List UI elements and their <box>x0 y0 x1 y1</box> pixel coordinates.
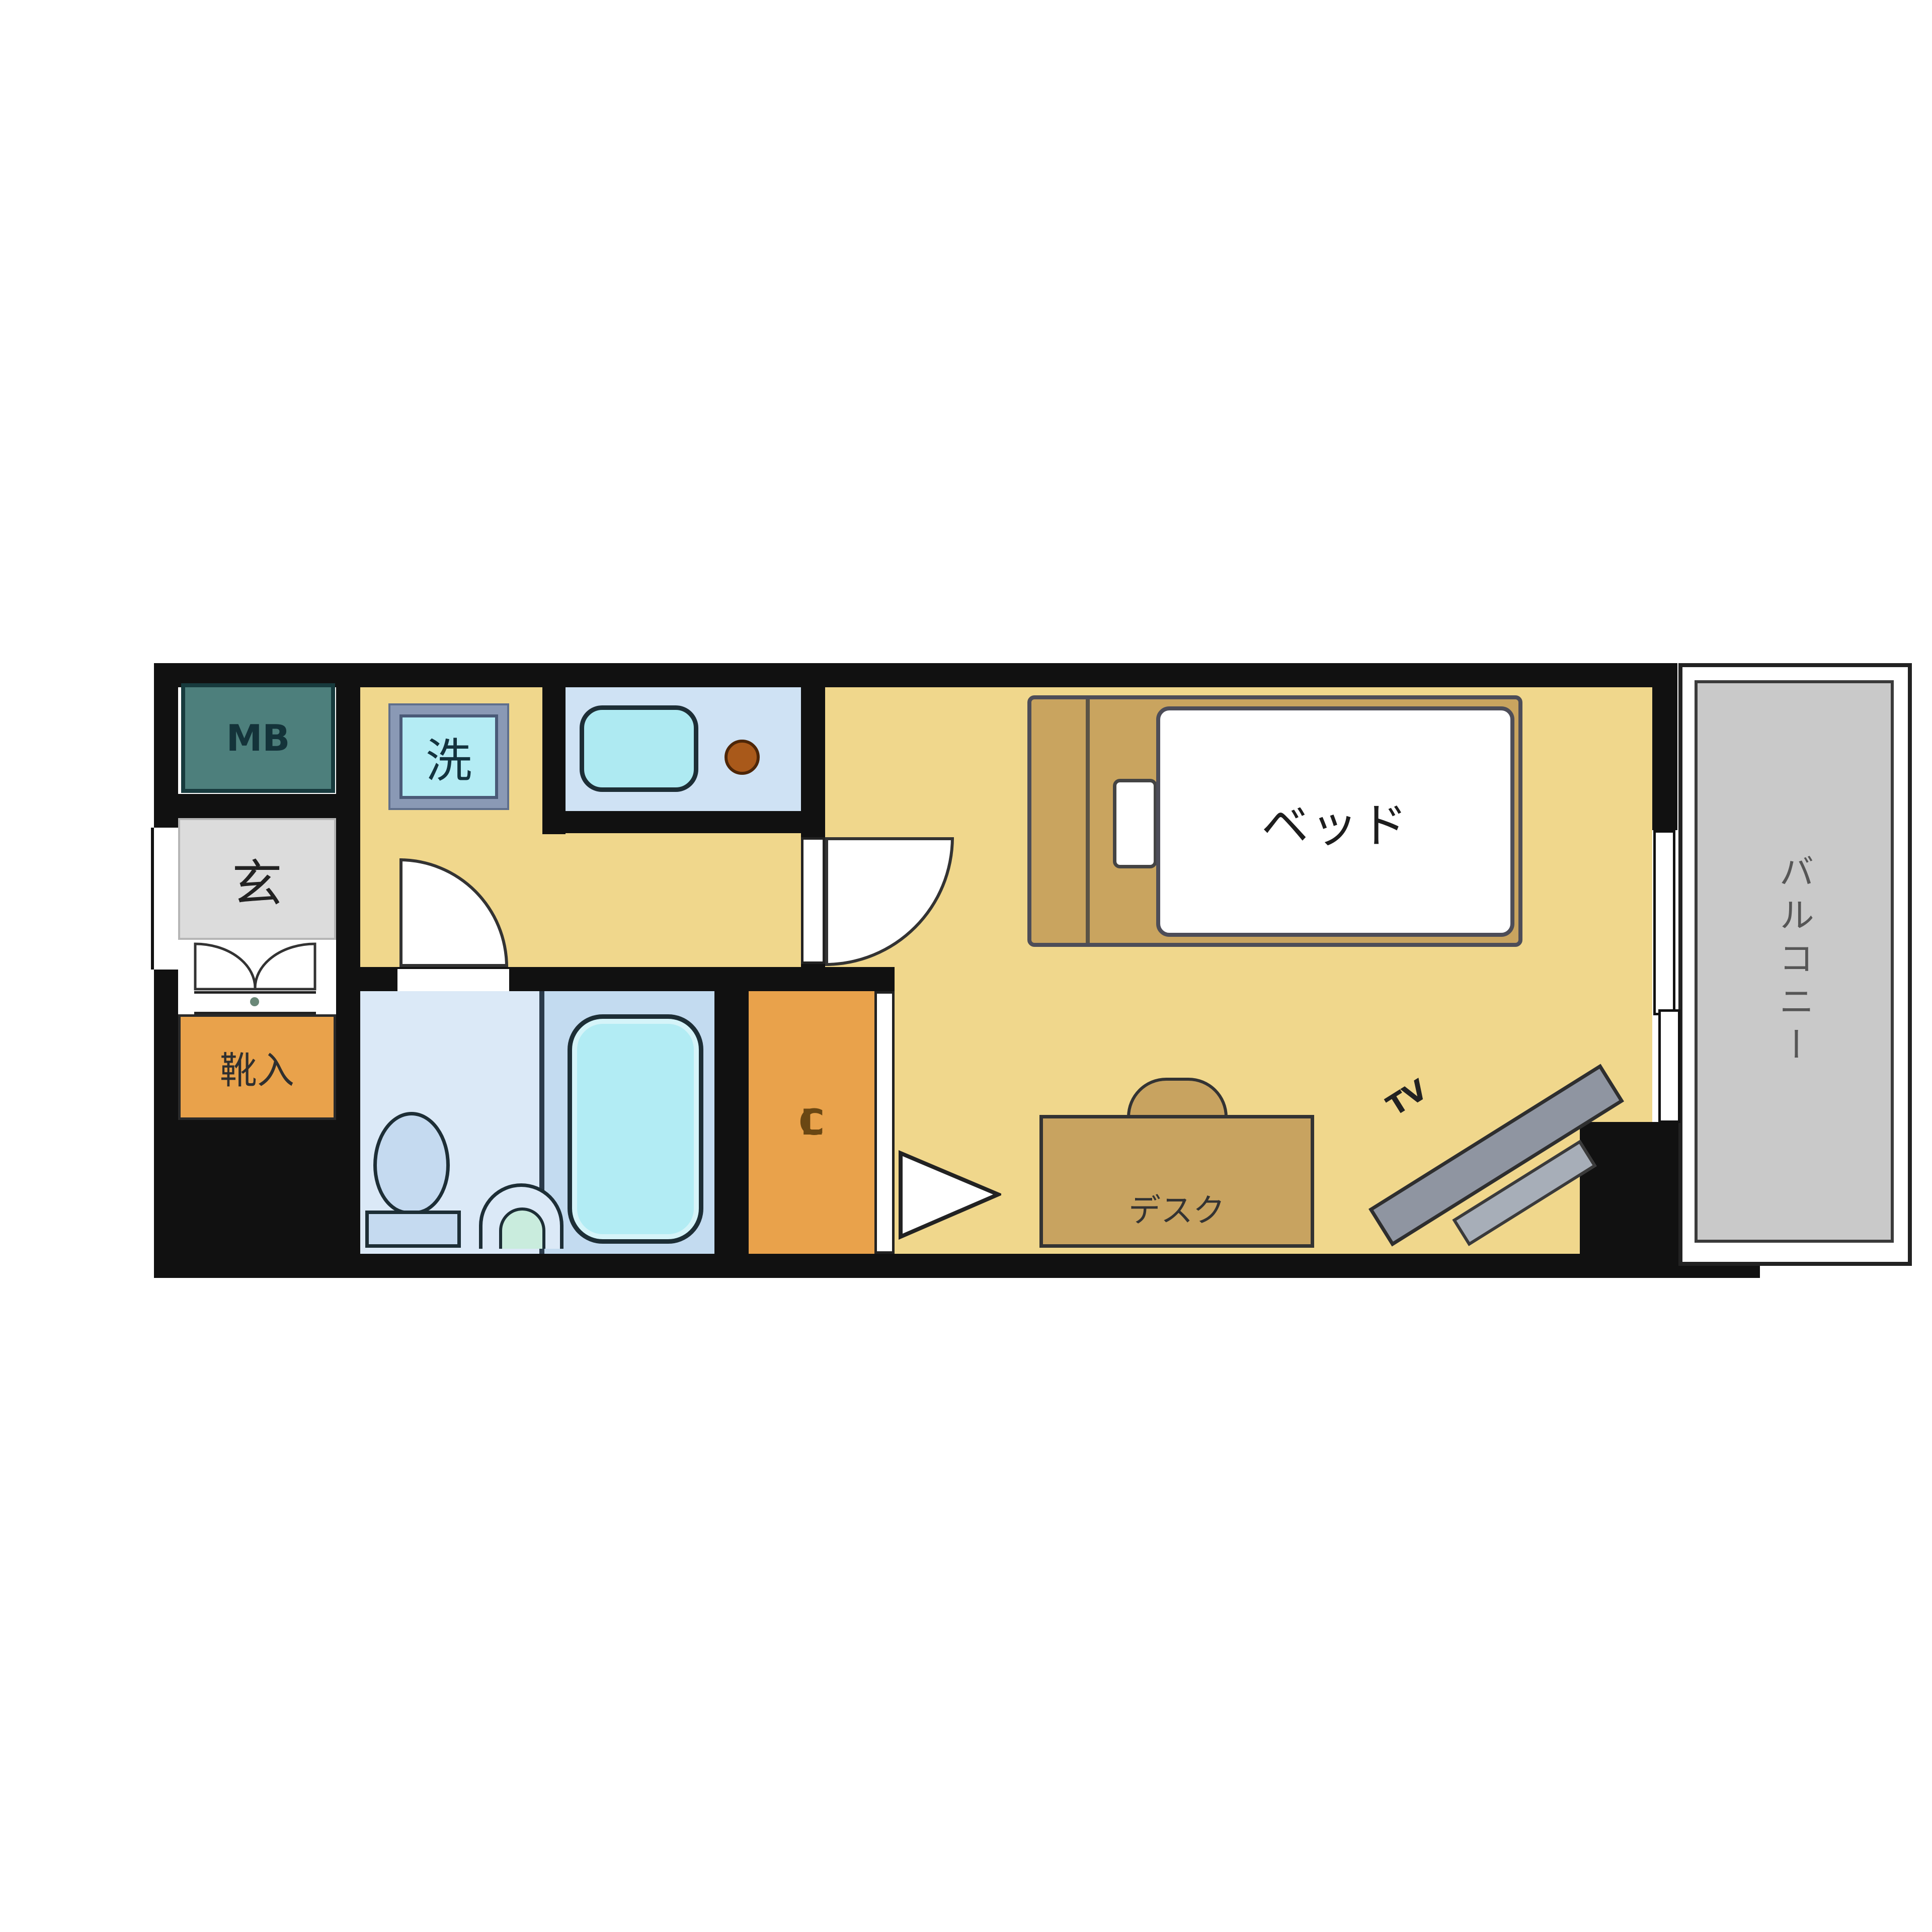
entrance-genkan: 玄 <box>178 818 336 940</box>
stove-burner-icon <box>725 740 760 775</box>
shoe-cabinet-label: 靴入 <box>220 1040 294 1094</box>
main-room-door-leaf <box>801 837 825 964</box>
wall-below-meter-box <box>154 794 360 818</box>
folding-door-arrow-icon <box>899 1150 1001 1240</box>
wall-bottom <box>154 1254 1677 1278</box>
wall-top <box>154 663 1677 687</box>
wall-right-upper <box>1652 663 1677 830</box>
closet: C L <box>749 991 874 1254</box>
balcony: バルコニー <box>1695 680 1894 1243</box>
wall-corner-bottom-left <box>154 1120 360 1278</box>
washing-machine: 洗 <box>399 714 498 799</box>
bathroom-doorway <box>397 969 509 991</box>
wall-hall-mainroom-upper <box>801 663 825 837</box>
door-handle-icon <box>250 997 259 1006</box>
bed: ベッド <box>1156 706 1514 937</box>
wall-kitchen-stub <box>542 663 566 834</box>
wall-bath-closet <box>714 991 749 1278</box>
wall-under-kitchen-counter <box>542 810 801 833</box>
wash-basin-bowl <box>499 1207 545 1249</box>
entrance-label: 玄 <box>232 843 282 916</box>
sliding-window-upper-sash <box>1653 830 1675 1015</box>
washing-machine-pan: 洗 <box>388 703 509 810</box>
meter-box-label: MB <box>226 717 290 759</box>
entrance-double-door-icon <box>178 940 336 991</box>
meter-box: MB <box>181 683 335 793</box>
bed-headboard <box>1086 699 1090 943</box>
entry-wall-opening <box>151 828 178 970</box>
closet-label-l: L <box>800 1103 823 1142</box>
desk-label: デスク <box>1129 1185 1225 1231</box>
desk: デスク <box>1039 1115 1314 1248</box>
bed-pillow <box>1113 779 1157 868</box>
floor-plan: バルコニー MB 玄 靴入 洗 C L <box>0 0 1932 1932</box>
washing-machine-label: 洗 <box>426 723 472 790</box>
closet-door <box>874 991 895 1254</box>
toilet <box>373 1112 450 1215</box>
bed-label: ベッド <box>1261 787 1409 856</box>
sliding-window-lower-sash <box>1658 1009 1680 1123</box>
shoe-cabinet: 靴入 <box>178 1014 336 1120</box>
toilet-tank <box>365 1211 461 1248</box>
bathtub <box>568 1014 703 1244</box>
balcony-label: バルコニー <box>1769 853 1820 1070</box>
kitchen-sink <box>580 705 698 792</box>
